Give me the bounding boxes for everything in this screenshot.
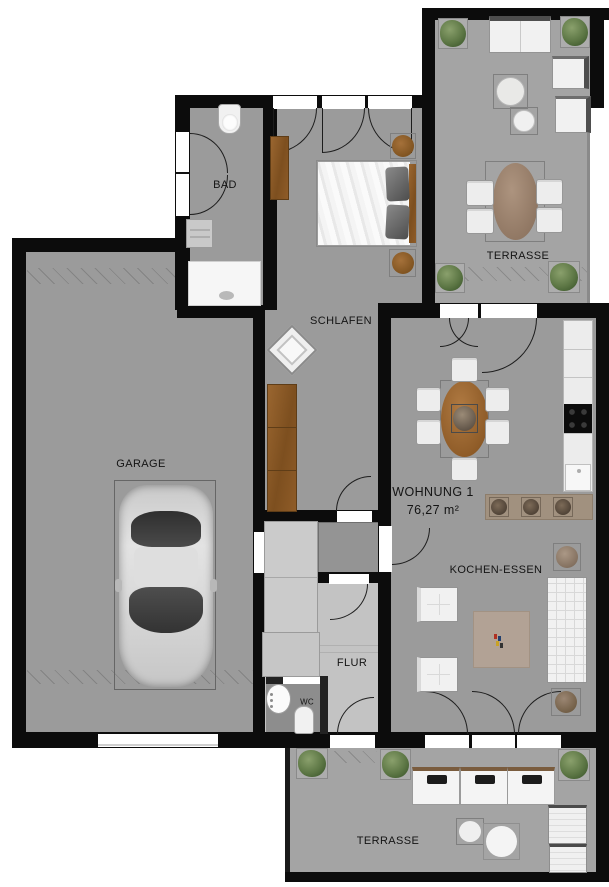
dining-table-box	[440, 380, 489, 458]
terrace-top-wall-right	[590, 8, 604, 108]
bar-stool-box	[489, 497, 509, 517]
rug-decor	[494, 634, 497, 639]
lounger-pillow	[522, 775, 542, 784]
nightstand	[392, 252, 414, 274]
plant	[382, 751, 409, 778]
lounger-pillow	[475, 775, 495, 784]
terrace-armchair	[552, 56, 589, 89]
sun-lounger	[412, 767, 460, 805]
bed-pillow	[385, 166, 410, 201]
room-label-garage: GARAGE	[116, 458, 165, 470]
coffee-table-box	[493, 74, 528, 109]
plant	[440, 20, 466, 47]
coffee-table-box	[510, 107, 538, 135]
terrace-armchair	[555, 96, 591, 133]
counter-seam	[564, 377, 592, 378]
toilet	[218, 104, 241, 134]
dining-chair	[485, 419, 510, 445]
car	[119, 485, 213, 687]
rug	[473, 611, 530, 668]
room-label-terrasse-top: TERRASSE	[487, 250, 550, 262]
wc-wall-right	[320, 676, 328, 734]
terrace-table	[459, 821, 481, 842]
plant	[560, 751, 588, 779]
room-label-kochen-essen: KOCHEN-ESSEN	[450, 564, 543, 576]
bar-stool-box	[553, 497, 573, 517]
nightstand	[392, 135, 414, 157]
hall-closet-low	[262, 632, 320, 677]
vestibule-hall-door	[329, 574, 369, 584]
side-table-box	[553, 543, 581, 571]
room-label-schlafen: SCHLAFEN	[310, 315, 372, 327]
plant-box	[548, 261, 580, 293]
plant-box	[560, 16, 590, 48]
coffee-table	[496, 77, 525, 106]
vanity-line	[190, 236, 210, 238]
terrace-chair	[536, 179, 563, 205]
terrace-table-box	[483, 823, 520, 860]
terrace-table-box	[456, 818, 484, 845]
counter-seam	[564, 349, 592, 350]
decor-diamond-inner	[276, 334, 307, 365]
floorplan: GARAGE BAD SCHLAFEN WOHNUNG 1 76,27 m² K…	[0, 0, 609, 887]
dining-chair	[416, 387, 441, 412]
deck-chair	[548, 805, 587, 844]
wc-wall-top	[266, 676, 283, 684]
unit-area-label: 76,27 m²	[407, 503, 460, 517]
vestibule-floor	[318, 522, 380, 574]
plant-box	[438, 18, 468, 49]
wardrobe-divider	[268, 427, 296, 428]
terrace-chair	[536, 207, 563, 233]
coffee-table	[513, 110, 535, 132]
terrace-sofa	[489, 16, 551, 53]
armchair	[417, 587, 458, 622]
bath-vanity	[186, 219, 213, 248]
bar-stool-box	[521, 497, 541, 517]
garage-wall-top	[12, 238, 190, 252]
wc-door-opening	[283, 676, 320, 684]
toilet-bowl	[222, 114, 238, 131]
vestibule-kitchen-door	[379, 526, 392, 572]
kitchen-wall-right	[596, 303, 609, 880]
side-table	[555, 691, 577, 713]
kitchen-terrace-door-top-2	[481, 304, 537, 318]
dining-chair	[451, 357, 478, 382]
shower-drain	[219, 291, 234, 300]
plant-box	[435, 263, 465, 293]
terrace-bottom-hatch	[333, 751, 377, 763]
sofa	[547, 577, 587, 683]
room-label-wc: WC	[300, 698, 314, 707]
kitchen-counter	[563, 320, 593, 492]
bath-wall-bottom	[177, 305, 265, 318]
wardrobe-divider	[268, 470, 296, 471]
dining-chair	[416, 419, 441, 445]
terrace-bottom-wall-bottom	[285, 872, 609, 882]
bath-window	[176, 132, 189, 216]
car-mirror-left	[115, 579, 122, 592]
sofa-cushion-divider	[520, 21, 521, 52]
kitchen-terrace-door-bottom-2	[472, 735, 515, 748]
dining-chair	[485, 387, 510, 412]
cooktop	[564, 404, 592, 433]
plant	[437, 265, 463, 291]
plant-box	[296, 748, 328, 779]
closet-divider	[265, 577, 317, 578]
bed-headboard	[409, 164, 416, 243]
terrace-chair	[466, 208, 494, 234]
plant-box	[558, 749, 590, 781]
table-centerpiece	[453, 406, 476, 431]
terrace-top-railing	[587, 108, 590, 304]
bedroom-door-opening	[337, 511, 372, 522]
kitchen-terrace-door-top-1	[440, 304, 478, 318]
bed-pillow	[385, 204, 410, 239]
armchair	[417, 657, 458, 692]
side-table	[556, 546, 578, 568]
room-label-flur: FLUR	[337, 657, 367, 669]
wc-sink	[266, 684, 291, 714]
car-roof	[134, 547, 198, 587]
car-parking-outline	[114, 480, 216, 690]
wardrobe-small	[270, 136, 289, 200]
nightstand-box	[389, 249, 416, 277]
room-label-bad: BAD	[213, 179, 237, 191]
kitchen-terrace-door-bottom-3	[517, 735, 561, 748]
sun-lounger	[460, 767, 508, 805]
plant	[550, 263, 578, 291]
lounger-pillow	[427, 775, 447, 784]
sun-lounger	[507, 767, 555, 805]
car-mirror-right	[210, 579, 217, 592]
room-label-terrasse-bottom: TERRASSE	[357, 835, 420, 847]
deck-chair	[549, 844, 587, 873]
car-rear-window	[131, 511, 201, 547]
wc-sink-tap	[270, 693, 273, 696]
bar-stool	[491, 499, 507, 515]
counter-seam	[564, 433, 592, 434]
wardrobe-large	[267, 384, 297, 512]
bar-stool	[555, 499, 571, 515]
hall-closet-tall	[264, 521, 318, 633]
side-table-box	[551, 688, 581, 716]
plant-box	[380, 749, 411, 780]
plant	[562, 18, 588, 46]
sink-tap	[577, 469, 581, 473]
bed	[316, 160, 417, 247]
bar-stool	[523, 499, 539, 515]
unit-name-label: WOHNUNG 1	[392, 485, 473, 499]
terrace-top-wall-left	[422, 8, 435, 318]
plant	[298, 750, 326, 777]
terrace-chair	[466, 180, 494, 206]
terrace-dining-table	[493, 163, 538, 240]
shower	[188, 261, 261, 306]
garage-wall-left	[12, 238, 26, 748]
kitchen-sink	[565, 464, 591, 491]
terrace-bottom-wall-left	[285, 748, 290, 874]
wc-toilet	[294, 706, 314, 734]
car-windshield	[129, 587, 203, 633]
nightstand-box	[390, 133, 416, 159]
hall-terrace-door	[330, 735, 375, 748]
door-leaf	[322, 108, 323, 153]
vanity-line	[190, 229, 210, 231]
terrace-table	[486, 826, 517, 857]
garage-gate-line	[98, 744, 218, 746]
bath-window-mullion	[176, 172, 189, 174]
dining-chair	[451, 457, 478, 481]
kitchen-terrace-door-bottom-1	[425, 735, 469, 748]
